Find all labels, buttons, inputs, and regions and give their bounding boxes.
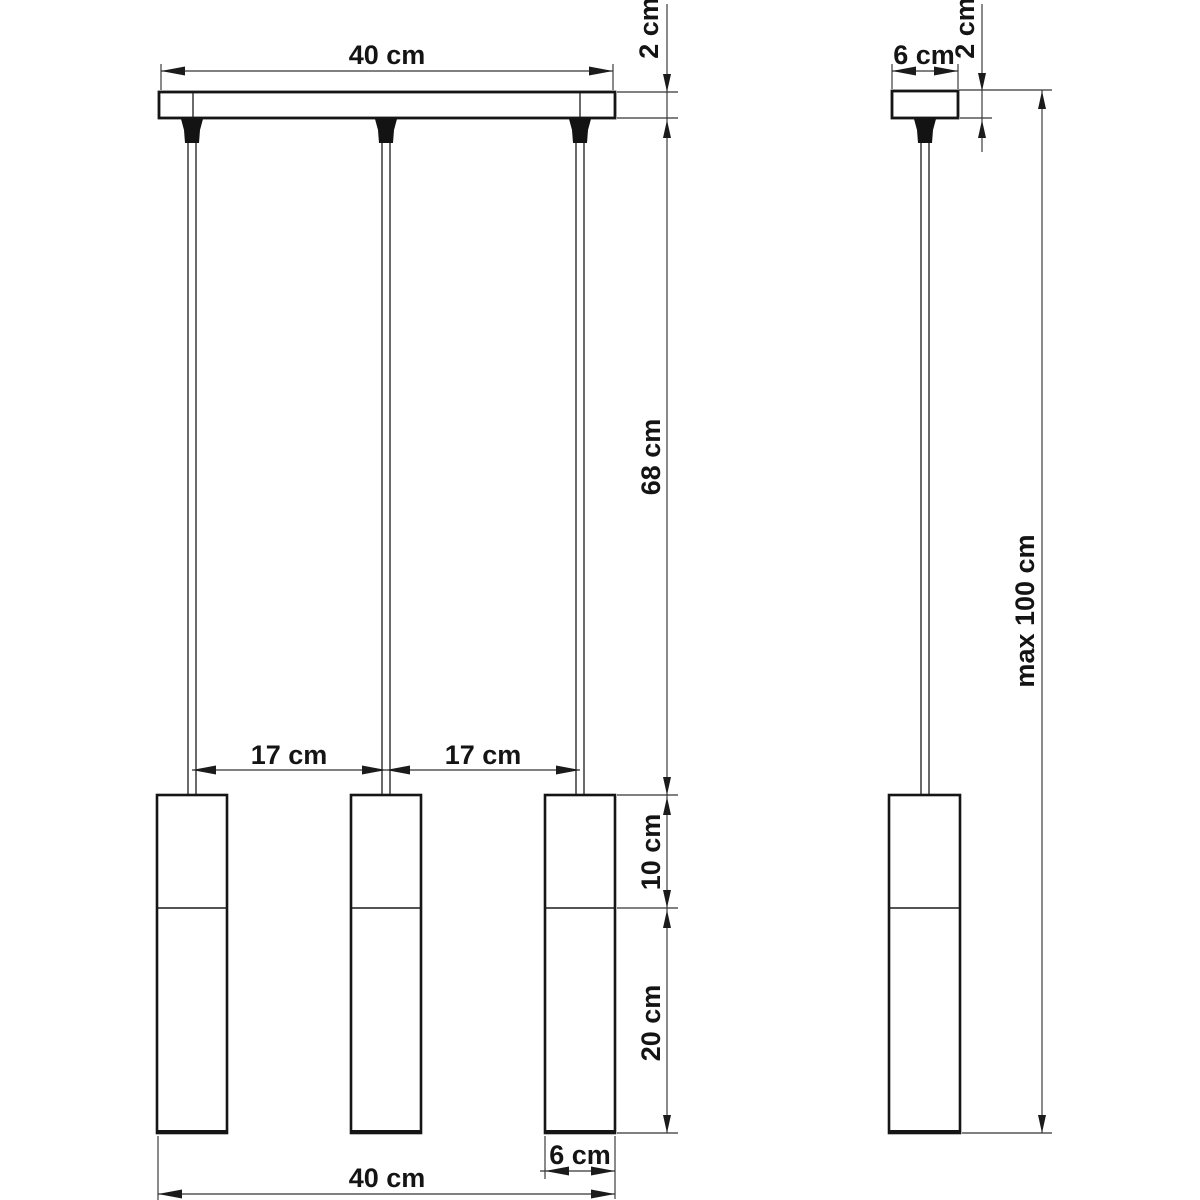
arrow-down <box>663 777 671 795</box>
arrow-down <box>1038 1115 1046 1133</box>
shade-body <box>889 795 960 1133</box>
arrow-down <box>663 890 671 908</box>
arrow-left <box>161 67 185 76</box>
dim-label-cable-length: 68 cm <box>636 419 666 496</box>
arrow-right <box>591 1190 615 1199</box>
dim-label-shade-diameter: 6 cm <box>549 1140 611 1170</box>
dim-label-canopy-depth: 6 cm <box>893 40 955 70</box>
cable-side <box>921 143 929 795</box>
cable-2 <box>382 143 390 795</box>
arrow-up <box>663 797 671 815</box>
dim-chain-right: 2 cm 68 cm 10 cm 20 cm <box>617 0 678 1133</box>
cord-grip-3 <box>569 119 591 143</box>
arrow-down <box>663 1115 671 1133</box>
arrow-right <box>589 67 613 76</box>
dim-label-canopy-width: 40 cm <box>349 40 426 70</box>
dim-canopy-depth: 6 cm <box>892 40 958 89</box>
dim-overall-width: 40 cm <box>158 1136 615 1200</box>
technical-drawing: 40 cm 2 cm 68 cm 10 cm 20 cm <box>0 0 1200 1200</box>
arrow-up <box>978 120 986 138</box>
arrow-down <box>663 74 671 92</box>
dim-label-spacing-1: 17 cm <box>251 740 328 770</box>
dim-canopy-height-side: 2 cm <box>950 0 992 152</box>
side-view: 6 cm 2 cm max 100 cm <box>889 0 1052 1133</box>
front-view: 40 cm 2 cm 68 cm 10 cm 20 cm <box>157 0 678 1200</box>
arrow-up <box>663 910 671 928</box>
cord-grip-side <box>914 119 936 143</box>
pendant-shade-2 <box>351 795 421 1133</box>
dim-label-overall-width: 40 cm <box>349 1163 426 1193</box>
shade-body <box>545 795 615 1133</box>
dim-shade-diameter: 6 cm <box>540 1136 615 1199</box>
arrow-down <box>978 73 986 91</box>
shade-body <box>157 795 227 1133</box>
pendant-lamp-dimension-drawing: 40 cm 2 cm 68 cm 10 cm 20 cm <box>0 0 1200 1200</box>
cord-grip-2 <box>375 119 397 143</box>
ceiling-bar <box>159 92 615 118</box>
dim-label-spacing-2: 17 cm <box>445 740 522 770</box>
dim-pendant-spacing: 17 cm 17 cm <box>192 740 580 775</box>
dim-label-max-height: max 100 cm <box>1010 534 1040 687</box>
pendant-shade-3 <box>545 795 615 1133</box>
arrow-left <box>158 1190 182 1199</box>
cable-3 <box>576 143 584 795</box>
pendant-shade-side <box>889 795 960 1133</box>
dim-label-canopy-height: 2 cm <box>634 0 664 59</box>
cable-1 <box>188 143 196 795</box>
shade-body <box>351 795 421 1133</box>
arrow-up <box>663 120 671 138</box>
pendant-shade-1 <box>157 795 227 1133</box>
dim-label-shade-bottom-section: 20 cm <box>636 985 666 1062</box>
cord-grip-1 <box>181 119 203 143</box>
canopy-side <box>892 91 958 118</box>
dim-label-canopy-height-side: 2 cm <box>950 0 980 59</box>
arrow-up <box>1038 91 1046 109</box>
dim-max-height: max 100 cm <box>958 90 1052 1133</box>
dim-label-shade-top-section: 10 cm <box>636 814 666 891</box>
dim-canopy-width: 40 cm <box>161 40 613 90</box>
